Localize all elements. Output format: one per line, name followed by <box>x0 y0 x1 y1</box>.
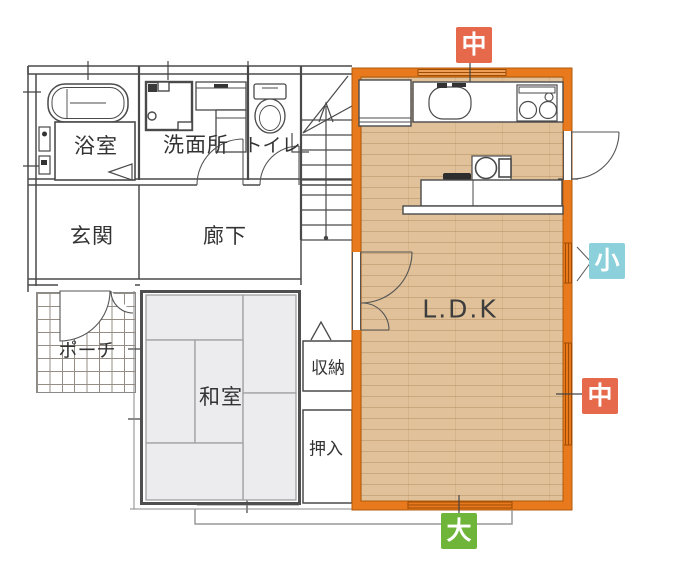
room-label-hallway: 廊下 <box>203 220 247 250</box>
entrance-door <box>60 291 133 341</box>
room-label-toilet: トイレ <box>243 131 300 158</box>
kitchen-sink <box>429 87 471 119</box>
room-label-bath: 浴室 <box>74 130 118 160</box>
room-label-entrance: 玄関 <box>70 220 114 250</box>
plan-linework <box>0 0 692 575</box>
shower-panel <box>39 127 50 151</box>
kitchen <box>359 80 563 214</box>
badge-window-medium-right: 中 <box>582 378 618 414</box>
ldk-left-double-door <box>361 252 412 330</box>
badge-window-small-right: 小 <box>589 243 625 279</box>
badge-window-medium-top: 中 <box>456 27 492 63</box>
counter-shelf <box>403 206 563 214</box>
floor-plan: 浴室 洗面所 トイレ 玄関 廊下 ポーチ 和室 収納 押入 L.D.K 中 小 … <box>0 0 692 575</box>
toilet-fixture <box>254 84 286 133</box>
room-label-washroom: 洗面所 <box>163 129 229 159</box>
counter-tray <box>443 173 471 180</box>
room-label-ldk: L.D.K <box>422 295 497 324</box>
island-counter <box>421 180 562 206</box>
room-label-storage: 収納 <box>311 354 345 379</box>
badge-window-large-bottom: 大 <box>441 513 477 549</box>
refrigerator <box>359 80 411 126</box>
room-label-porch: ポーチ <box>58 336 115 363</box>
room-label-japanese-room: 和室 <box>199 381 243 411</box>
stairs-direction-triangle <box>311 322 331 340</box>
toilet-tank <box>254 84 286 99</box>
ldk-right-door <box>572 132 619 179</box>
room-label-closet: 押入 <box>309 435 343 460</box>
ldk-highlight-walls <box>352 61 619 516</box>
ldk-bottom-window <box>408 501 512 509</box>
storage-column <box>303 322 352 503</box>
